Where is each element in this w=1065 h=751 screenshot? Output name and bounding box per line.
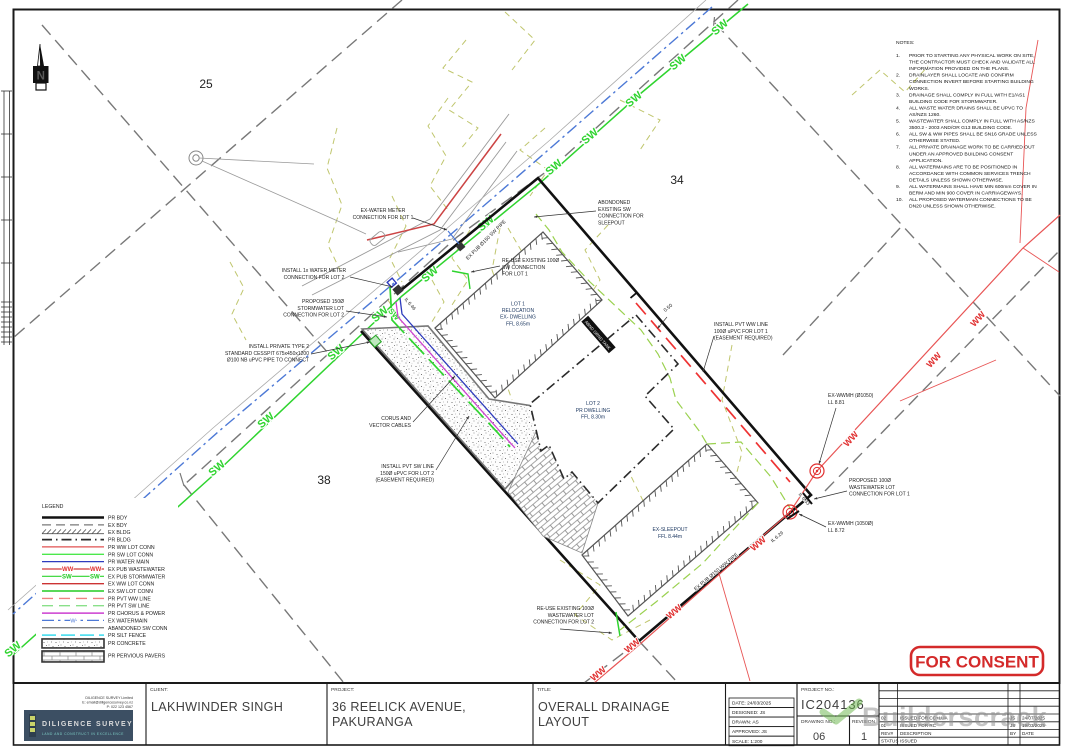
svg-text:CONNECTION INVERT BEFORE START: CONNECTION INVERT BEFORE STARTING BUILDI… xyxy=(909,79,1034,85)
svg-text:DRAINLAYER SHALL LOCATE AND CO: DRAINLAYER SHALL LOCATE AND CONFIRM xyxy=(909,73,1014,79)
svg-text:APPROVED: JS: APPROVED: JS xyxy=(732,729,767,735)
svg-text:ALL PROPOSED WATERMAIN CONNECT: ALL PROPOSED WATERMAIN CONNECTIONS TO BE xyxy=(909,197,1033,203)
svg-text:36 REELICK AVENUE,: 36 REELICK AVENUE, xyxy=(332,700,466,714)
svg-text:SW CONNECTION: SW CONNECTION xyxy=(502,265,545,271)
svg-text:DRAINAGE SHALL COMPLY IN FULL: DRAINAGE SHALL COMPLY IN FULL WITH E1/AS… xyxy=(909,92,1025,98)
svg-text:2.: 2. xyxy=(896,73,900,79)
svg-text:ACCORDANCE WITH COMMON SERVICE: ACCORDANCE WITH COMMON SERVICES TRENCH xyxy=(909,171,1031,177)
svg-text:EX PUB WASTEWATER: EX PUB WASTEWATER xyxy=(108,567,165,573)
svg-text:EXISTING SW: EXISTING SW xyxy=(598,207,631,213)
svg-text:FFL 8.44m: FFL 8.44m xyxy=(658,534,682,540)
svg-text:8.: 8. xyxy=(896,164,900,170)
svg-text:APPLICATION.: APPLICATION. xyxy=(909,158,943,164)
svg-text:LAND AND CONSTRUCT IN EXCELLEN: LAND AND CONSTRUCT IN EXCELLENCE xyxy=(42,732,124,736)
svg-text:INFORMATION PROVIDED ON THE PL: INFORMATION PROVIDED ON THE PLANS. xyxy=(909,66,1009,72)
svg-text:AS/NZS 1260.: AS/NZS 1260. xyxy=(909,112,941,118)
svg-text:PR WATER MAIN: PR WATER MAIN xyxy=(108,560,149,566)
svg-text:EX- DWELLING: EX- DWELLING xyxy=(500,315,536,321)
svg-text:LAKHWINDER SINGH: LAKHWINDER SINGH xyxy=(151,700,283,714)
svg-text:PR PVT WW LINE: PR PVT WW LINE xyxy=(108,596,151,602)
svg-text:EX BDY: EX BDY xyxy=(108,523,128,529)
svg-text:INSTALL PRIVATE TYPE 2: INSTALL PRIVATE TYPE 2 xyxy=(249,344,310,350)
svg-text:Ø100 NB uPVC PIPE TO CONNECT: Ø100 NB uPVC PIPE TO CONNECT xyxy=(227,358,309,364)
svg-text:EX BLDG: EX BLDG xyxy=(108,530,131,536)
svg-text:PR SILT FENCE: PR SILT FENCE xyxy=(108,633,147,639)
svg-text:3.: 3. xyxy=(896,92,900,98)
svg-text:STANDARD CESSPIT 675x450x1200: STANDARD CESSPIT 675x450x1200 xyxy=(225,351,309,357)
svg-text:ALL WATERMAINS ARE TO BE POSIT: ALL WATERMAINS ARE TO BE POSITIONED IN xyxy=(909,164,1018,170)
svg-text:1: 1 xyxy=(861,731,867,743)
svg-text:BERM AND MIN 900 COVER IN CARR: BERM AND MIN 900 COVER IN CARRIAGEWAYS. xyxy=(909,191,1023,197)
svg-text:INSTALL PVT WW LINE: INSTALL PVT WW LINE xyxy=(714,322,769,328)
svg-text:SW: SW xyxy=(62,575,72,581)
svg-text:ABANDONED SW CONN: ABANDONED SW CONN xyxy=(108,626,168,632)
svg-text:DESIGNED: JS: DESIGNED: JS xyxy=(732,710,765,716)
svg-text:PROPOSED 100Ø: PROPOSED 100Ø xyxy=(849,478,891,484)
svg-text:FFL 8.30m: FFL 8.30m xyxy=(581,415,605,421)
svg-text:FOR LOT 1: FOR LOT 1 xyxy=(502,272,528,278)
svg-text:34: 34 xyxy=(670,173,684,187)
svg-text:TITLE:: TITLE: xyxy=(537,687,551,693)
svg-text:(EASEMENT REQUIRED): (EASEMENT REQUIRED) xyxy=(375,478,434,484)
svg-text:EX WATERMAIN: EX WATERMAIN xyxy=(108,618,148,624)
svg-text:5.: 5. xyxy=(896,119,900,125)
svg-text:N: N xyxy=(37,71,45,83)
svg-text:LEGEND: LEGEND xyxy=(42,504,64,510)
svg-text:WW: WW xyxy=(90,567,102,573)
svg-text:25: 25 xyxy=(199,77,213,91)
svg-text:OVERALL DRAINAGE: OVERALL DRAINAGE xyxy=(538,700,670,714)
svg-text:DN20 UNLESS SHOWN OTHERWISE.: DN20 UNLESS SHOWN OTHERWISE. xyxy=(909,204,996,210)
svg-text:DILIGENCE SURVEY Limited: DILIGENCE SURVEY Limited xyxy=(85,696,133,700)
svg-text:CONNECTION FOR: CONNECTION FOR xyxy=(598,214,644,220)
svg-text:06: 06 xyxy=(813,731,825,743)
svg-text:RE-USE EXISTING 100Ø: RE-USE EXISTING 100Ø xyxy=(537,606,594,612)
svg-text:PR CONCRETE: PR CONCRETE xyxy=(108,641,146,647)
svg-text:FFL 8.65m: FFL 8.65m xyxy=(506,321,530,327)
svg-text:PRIOR TO STARTING ANY PHYSICAL: PRIOR TO STARTING ANY PHYSICAL WORK ON S… xyxy=(909,53,1035,59)
svg-text:STORMWATER LOT: STORMWATER LOT xyxy=(297,306,344,312)
svg-text:LL 8.81: LL 8.81 xyxy=(828,400,845,406)
svg-text:PR CHORUS & POWER: PR CHORUS & POWER xyxy=(108,611,165,617)
svg-text:1.: 1. xyxy=(896,53,900,59)
svg-text:ALL WASTE WATER DRAINS SHALL B: ALL WASTE WATER DRAINS SHALL BE UPVC TO xyxy=(909,105,1023,111)
svg-text:LOT 2: LOT 2 xyxy=(586,401,600,407)
svg-text:CONNECTION FOR LOT 2: CONNECTION FOR LOT 2 xyxy=(284,275,345,281)
svg-text:SLEEPOUT: SLEEPOUT xyxy=(598,220,625,226)
svg-text:FOR CONSENT: FOR CONSENT xyxy=(915,653,1039,672)
svg-text:DRAWN: AS: DRAWN: AS xyxy=(732,720,759,726)
svg-text:WW: WW xyxy=(62,567,74,573)
svg-text:ALL PRIVATE DRAINAGE WORK TO B: ALL PRIVATE DRAINAGE WORK TO BE CARRIED … xyxy=(909,145,1035,151)
svg-text:CORUS AND: CORUS AND xyxy=(381,416,411,422)
svg-text:LAYOUT: LAYOUT xyxy=(538,715,589,729)
svg-text:CONNECTION FOR LOT 2: CONNECTION FOR LOT 2 xyxy=(533,620,594,626)
svg-text:UNDER AN APPROVED BUILDING CON: UNDER AN APPROVED BUILDING CONSENT xyxy=(909,151,1013,157)
svg-text:EX-SLEEPOUT: EX-SLEEPOUT xyxy=(652,527,687,533)
svg-text:PROJECT:: PROJECT: xyxy=(331,687,354,693)
svg-text:LL 8.72: LL 8.72 xyxy=(828,528,845,534)
svg-text:EX WW LOT CONN: EX WW LOT CONN xyxy=(108,582,155,588)
svg-text:CONNECTION FOR LOT 1: CONNECTION FOR LOT 1 xyxy=(849,492,910,498)
svg-text:PR SW LOT CONN: PR SW LOT CONN xyxy=(108,552,153,558)
svg-text:ALL SW & WW PIPES SHALL BE SN1: ALL SW & WW PIPES SHALL BE SN16 GRADE UN… xyxy=(909,132,1037,138)
svg-text:E: email@diligencesurvey.co.nz: E: email@diligencesurvey.co.nz xyxy=(82,701,133,705)
svg-text:LOT 1: LOT 1 xyxy=(511,302,525,308)
svg-text:EX-WWMH (1050Ø): EX-WWMH (1050Ø) xyxy=(828,521,874,527)
svg-text:PR BLDG: PR BLDG xyxy=(108,538,131,544)
svg-text:ALL WATERMAINS SHALL HAVE MIN: ALL WATERMAINS SHALL HAVE MIN 600mm COVE… xyxy=(909,184,1037,190)
svg-text:EX-WATER METER: EX-WATER METER xyxy=(361,208,406,214)
svg-text:CONNECTION FOR LOT 2: CONNECTION FOR LOT 2 xyxy=(283,313,344,319)
svg-text:PR BDY: PR BDY xyxy=(108,516,128,522)
svg-text:PROJECT NO.:: PROJECT NO.: xyxy=(801,687,835,693)
svg-text:W: W xyxy=(70,619,76,625)
svg-text:EX-WWMH (Ø1050): EX-WWMH (Ø1050) xyxy=(828,393,874,399)
svg-text:OTHERWISE STATED.: OTHERWISE STATED. xyxy=(909,138,960,144)
svg-text:DILIGENCE SURVEY: DILIGENCE SURVEY xyxy=(42,721,133,728)
svg-text:Builderscrack: Builderscrack xyxy=(862,702,1048,732)
svg-text:DATE: 24/03/2025: DATE: 24/03/2025 xyxy=(732,701,771,707)
svg-text:EX PUB STORMWATER: EX PUB STORMWATER xyxy=(108,574,166,580)
svg-text:SW: SW xyxy=(90,575,100,581)
svg-text:RE-USE EXISTING 100Ø: RE-USE EXISTING 100Ø xyxy=(502,258,559,264)
svg-text:BUILDING CODE FOR STORMWATER.: BUILDING CODE FOR STORMWATER. xyxy=(909,99,998,105)
svg-text:WORKS.: WORKS. xyxy=(909,86,929,92)
svg-text:PR DWELLING: PR DWELLING xyxy=(576,408,611,414)
svg-text:ABONDONED: ABONDONED xyxy=(598,200,631,206)
svg-text:STATUS: STATUS xyxy=(881,739,898,744)
svg-text:INSTALL 1x WATER METER: INSTALL 1x WATER METER xyxy=(282,268,347,274)
svg-text:9.: 9. xyxy=(896,184,900,190)
svg-text:PR PVT SW LINE: PR PVT SW LINE xyxy=(108,604,150,610)
svg-text:PR WW LOT CONN: PR WW LOT CONN xyxy=(108,545,155,551)
svg-text:P: 022 123 4567: P: 022 123 4567 xyxy=(107,705,133,709)
svg-text:WASTEWATER LOT: WASTEWATER LOT xyxy=(548,613,594,619)
svg-text:6.: 6. xyxy=(896,132,900,138)
svg-text:10.: 10. xyxy=(896,197,903,203)
svg-text:(EASEMENT REQUIRED): (EASEMENT REQUIRED) xyxy=(714,336,773,342)
svg-text:PR PERVIOUS PAVERS: PR PERVIOUS PAVERS xyxy=(108,653,166,659)
svg-text:PAKURANGA: PAKURANGA xyxy=(332,715,413,729)
svg-text:7.: 7. xyxy=(896,145,900,151)
svg-text:150Ø uPVC FOR LOT 2: 150Ø uPVC FOR LOT 2 xyxy=(380,471,434,477)
svg-text:EX SW LOT CONN: EX SW LOT CONN xyxy=(108,589,153,595)
svg-text:SCALE: 1:200: SCALE: 1:200 xyxy=(732,739,763,745)
svg-text:PROPOSED 150Ø: PROPOSED 150Ø xyxy=(302,299,344,305)
svg-text:VECTOR CABLES: VECTOR CABLES xyxy=(369,423,412,429)
svg-text:RELOCATION: RELOCATION xyxy=(502,308,535,314)
svg-text:WASTEWATER SHALL COMPLY IN FU: WASTEWATER SHALL COMPLY IN FULL WITH AS/… xyxy=(909,119,1035,125)
svg-text:4.: 4. xyxy=(896,105,900,111)
svg-text:THE CONTRACTOR MUST CHECK AND: THE CONTRACTOR MUST CHECK AND VALIDATE A… xyxy=(909,60,1035,66)
svg-text:100Ø uPVC FOR LOT 1: 100Ø uPVC FOR LOT 1 xyxy=(714,329,768,335)
svg-text:INSTALL PVT SW LINE: INSTALL PVT SW LINE xyxy=(381,464,434,470)
svg-text:CLIENT:: CLIENT: xyxy=(150,687,168,693)
svg-text:DETAILS UNLESS SHOWN OTHERWISE: DETAILS UNLESS SHOWN OTHERWISE. xyxy=(909,177,1003,183)
svg-text:NOTES:: NOTES: xyxy=(896,40,914,46)
svg-text:CONNECTION FOR LOT 1: CONNECTION FOR LOT 1 xyxy=(353,215,414,221)
svg-text:WASTEWATER LOT: WASTEWATER LOT xyxy=(849,485,895,491)
svg-text:38: 38 xyxy=(317,473,331,487)
svg-text:3500.2 - 2003 AND/OR G13 BUILD: 3500.2 - 2003 AND/OR G13 BUILDING CODE. xyxy=(909,125,1012,131)
svg-text:ISSUED: ISSUED xyxy=(900,739,918,744)
